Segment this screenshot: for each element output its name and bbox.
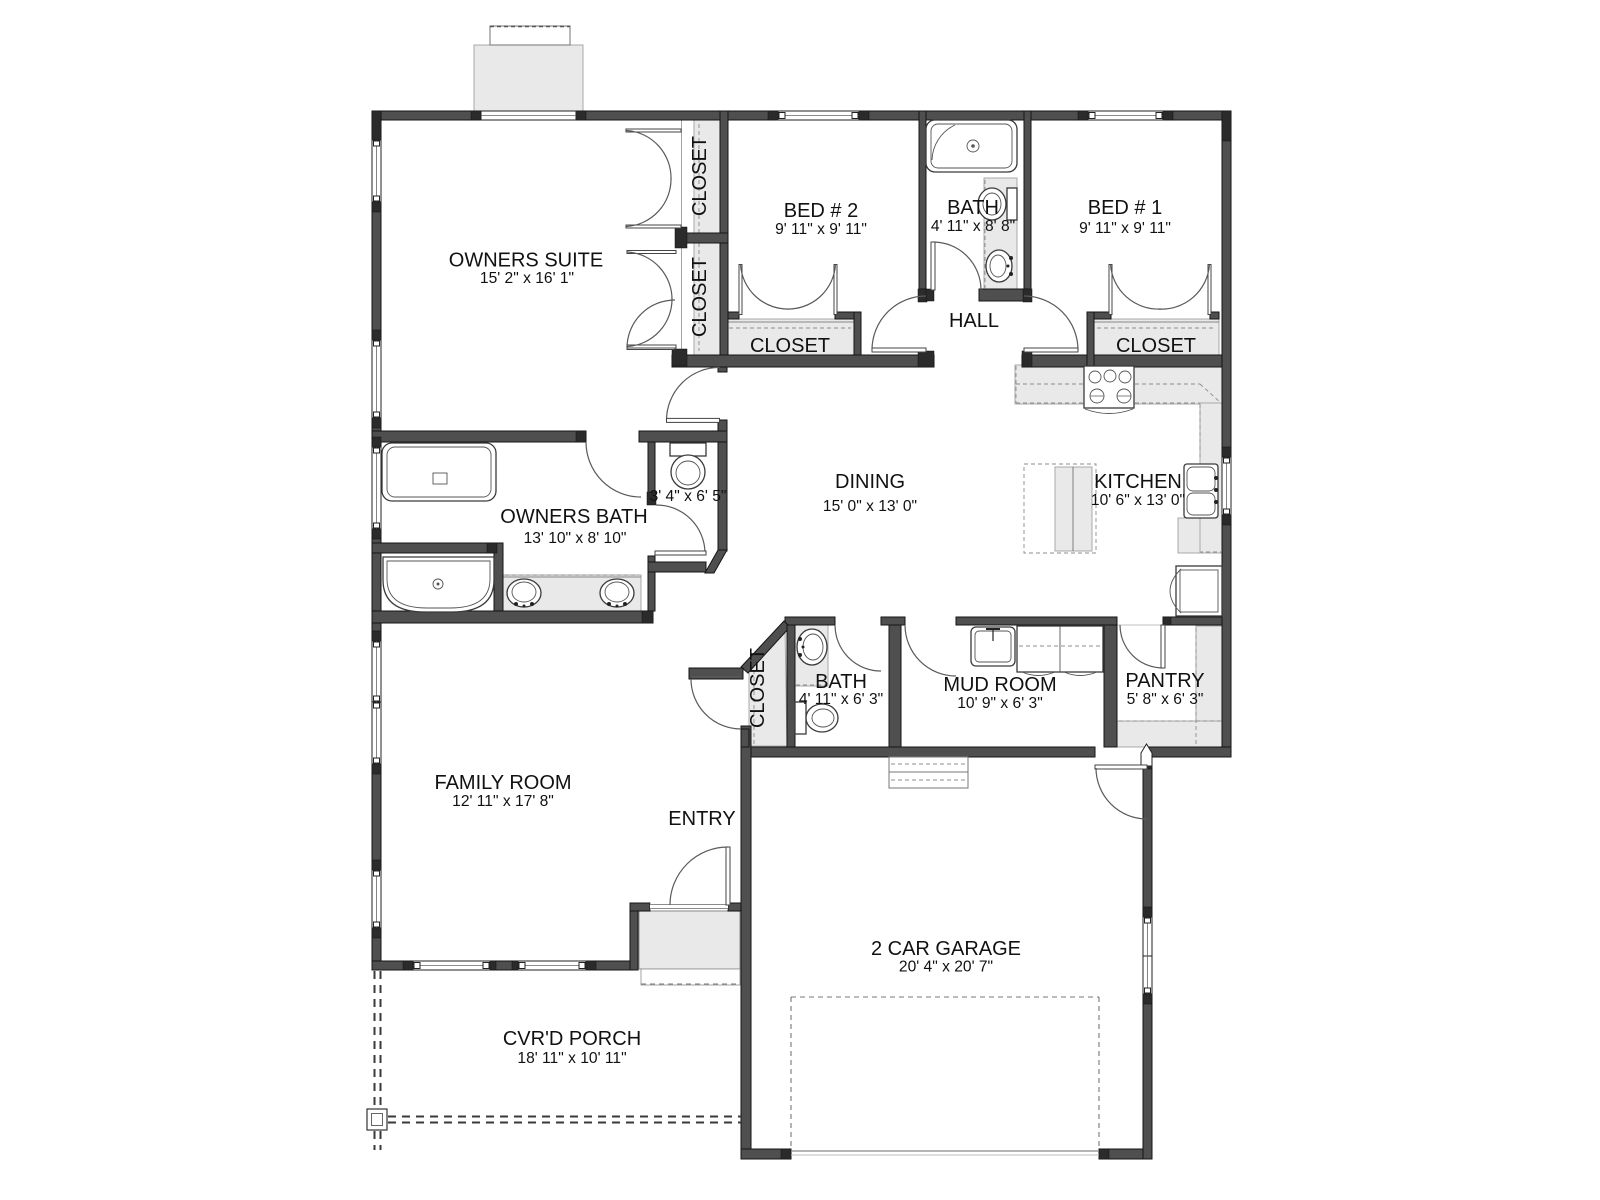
- svg-text:CLOSET: CLOSET: [1116, 335, 1196, 357]
- svg-text:5' 8" x 6' 3": 5' 8" x 6' 3": [1127, 691, 1204, 708]
- svg-text:9' 11" x 9' 11": 9' 11" x 9' 11": [775, 221, 867, 238]
- svg-text:9' 11" x 9' 11": 9' 11" x 9' 11": [1079, 220, 1171, 237]
- svg-text:OWNERS BATH: OWNERS BATH: [500, 506, 647, 528]
- svg-text:MUD ROOM: MUD ROOM: [943, 674, 1056, 696]
- svg-text:18' 11" x 10' 11": 18' 11" x 10' 11": [517, 1050, 626, 1067]
- svg-text:2 CAR GARAGE: 2 CAR GARAGE: [871, 938, 1021, 960]
- svg-text:HALL: HALL: [949, 310, 999, 332]
- svg-text:10' 9" x 6' 3": 10' 9" x 6' 3": [957, 695, 1043, 712]
- svg-text:BED # 2: BED # 2: [784, 200, 858, 222]
- svg-text:13' 10" x 8' 10": 13' 10" x 8' 10": [524, 530, 627, 547]
- svg-text:ENTRY: ENTRY: [668, 808, 735, 830]
- svg-text:BED # 1: BED # 1: [1088, 197, 1162, 219]
- svg-text:BATH: BATH: [947, 197, 999, 219]
- svg-text:OWNERS SUITE: OWNERS SUITE: [449, 250, 603, 272]
- svg-text:15' 0" x 13' 0": 15' 0" x 13' 0": [823, 498, 917, 515]
- svg-text:20' 4" x 20' 7": 20' 4" x 20' 7": [899, 959, 993, 976]
- svg-text:10' 6" x 13' 0": 10' 6" x 13' 0": [1091, 492, 1185, 509]
- svg-text:FAMILY ROOM: FAMILY ROOM: [434, 772, 571, 794]
- svg-text:CLOSET: CLOSET: [689, 257, 711, 337]
- svg-text:CVR'D PORCH: CVR'D PORCH: [503, 1028, 641, 1050]
- svg-text:4' 11" x 6' 3": 4' 11" x 6' 3": [799, 691, 883, 708]
- svg-text:CLOSET: CLOSET: [747, 648, 769, 728]
- svg-text:DINING: DINING: [835, 471, 905, 493]
- svg-text:12' 11" x 17' 8": 12' 11" x 17' 8": [452, 793, 554, 810]
- svg-text:CLOSET: CLOSET: [689, 136, 711, 216]
- svg-text:BATH: BATH: [815, 671, 867, 693]
- svg-text:15' 2" x 16' 1": 15' 2" x 16' 1": [480, 270, 574, 287]
- svg-text:KITCHEN: KITCHEN: [1094, 471, 1182, 493]
- svg-text:CLOSET: CLOSET: [750, 335, 830, 357]
- svg-text:4' 11" x 8' 8": 4' 11" x 8' 8": [931, 218, 1015, 235]
- svg-text:PANTRY: PANTRY: [1125, 670, 1204, 692]
- svg-text:3' 4" x 6' 5": 3' 4" x 6' 5": [650, 488, 727, 505]
